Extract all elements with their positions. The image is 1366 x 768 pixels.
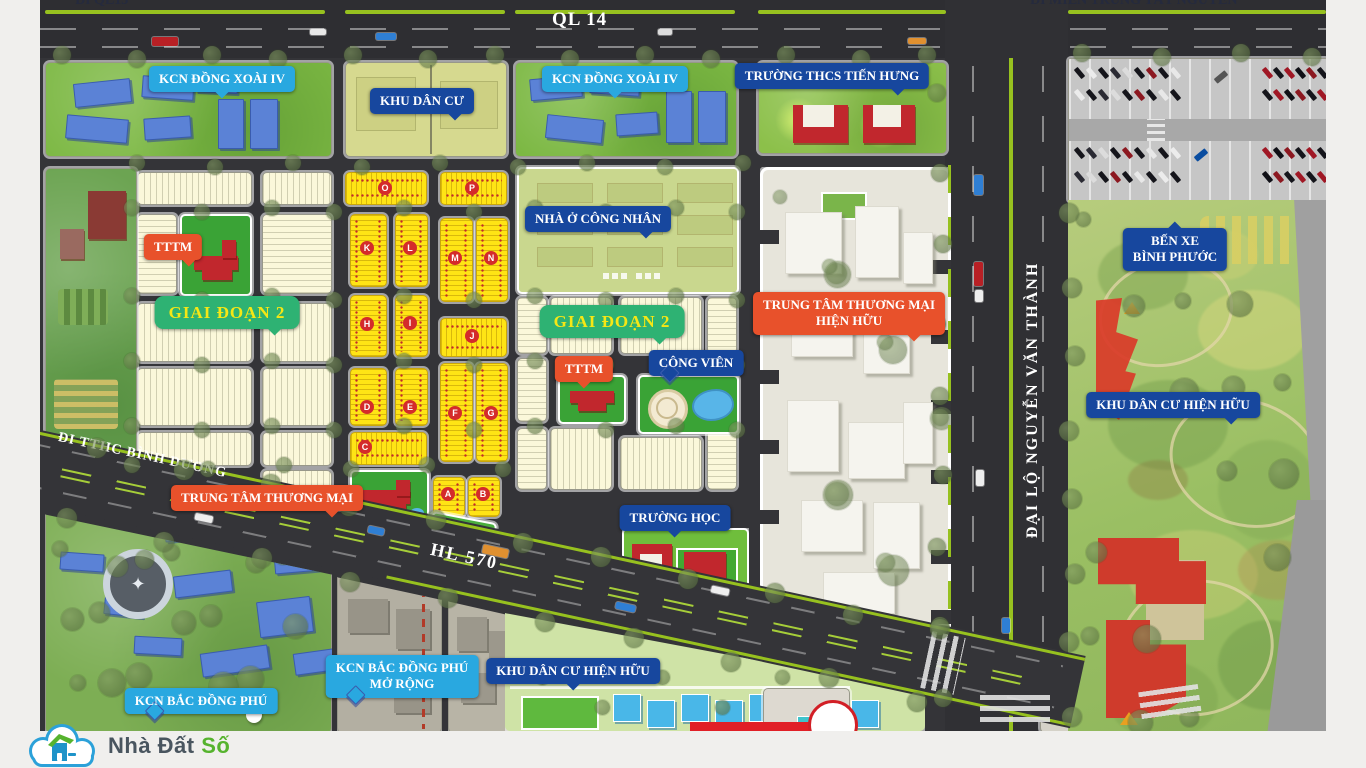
parcel-tttm-center: [558, 375, 626, 424]
building-outline: [607, 183, 663, 203]
tree-marker: [715, 700, 730, 715]
callout-label: NHÀ Ở CÔNG NHÂN: [535, 211, 661, 227]
tree-marker: [326, 292, 342, 308]
lane-dashes: [40, 28, 940, 30]
garden-rows: [58, 289, 108, 325]
tree-marker: [1123, 295, 1145, 317]
master-plan-map: ĐI QL13 QL 14 ĐI MIỀN TRUNG TÂY NGUYÊN Đ…: [40, 0, 1326, 731]
lot-letter-marker-B: B: [476, 487, 490, 501]
tree-marker: [729, 292, 745, 308]
building-footprint: [636, 273, 642, 279]
building-footprint: [603, 273, 609, 279]
tree-marker: [396, 200, 412, 216]
vehicle-marker: [908, 38, 926, 44]
callout-label: KCN BẮC ĐỒNG PHÚ: [336, 660, 469, 676]
callout-label: TRUNG TÂM THƯƠNG MẠI: [181, 490, 353, 506]
street-notch: [759, 510, 779, 524]
lot-letter-marker-O: O: [378, 181, 392, 195]
park-building: [60, 229, 84, 259]
tree-marker: [1153, 48, 1171, 66]
lot-letter-marker-G: G: [484, 406, 498, 420]
tree-marker: [721, 652, 741, 672]
tree-marker: [89, 602, 110, 623]
tree-marker: [207, 159, 223, 175]
lot-letter-marker-I: I: [403, 316, 417, 330]
tree-marker: [1062, 707, 1082, 727]
tree-marker: [252, 548, 272, 568]
lot-block: [137, 172, 252, 205]
tree-marker: [326, 204, 342, 220]
red-banner: [690, 722, 822, 731]
parcel-trung-tam-thuong-mai-hien-huu: [760, 167, 951, 661]
tree-marker: [53, 46, 71, 64]
road-green-line: [1068, 10, 1326, 14]
callout-label: TTTM: [154, 239, 192, 255]
tree-marker: [1303, 48, 1321, 66]
tree-marker: [775, 670, 790, 685]
crosswalk: [1147, 119, 1165, 141]
tree-marker: [87, 438, 107, 458]
lot-block-phase1: [395, 368, 428, 426]
callout-kcn-bac-dong-phu-mo-rong: KCN BẮC ĐỒNG PHÚMỞ RỘNG: [326, 655, 479, 698]
vehicle-marker: [658, 29, 672, 35]
tree-marker: [579, 155, 595, 171]
callout-truong-thcs-tien-hung: TRƯỜNG THCS TIẾN HƯNG: [735, 63, 929, 89]
tree-marker: [466, 292, 482, 308]
tree-marker: [591, 547, 611, 567]
building-shape: [615, 112, 658, 137]
road-label-di-ql13: ĐI QL13: [75, 0, 128, 9]
building-shape: [65, 114, 129, 143]
lot-letter-marker-F: F: [448, 406, 462, 420]
callout-tttm-phase2-west: TTTM: [144, 234, 202, 260]
tree-marker: [877, 334, 893, 350]
tree-marker: [466, 422, 482, 438]
cloud-house-icon: [26, 723, 100, 768]
parcel-parking-lot: [1068, 58, 1326, 202]
parking-road: [1069, 119, 1326, 141]
tree-marker: [843, 605, 863, 625]
road-label-di-mien-trung-tay-nguyen: ĐI MIỀN TRUNG TÂY NGUYÊN: [1030, 0, 1237, 9]
street-notch: [759, 440, 779, 454]
school-building: [793, 105, 848, 143]
callout-label: BẾN XE: [1133, 233, 1217, 249]
callout-giai-doan-2-center: GIAI ĐOẠN 2: [540, 305, 685, 338]
road-label-dai-lo-nguyen-van-thanh: ĐẠI LỘ NGUYỄN VĂN THÀNH: [1024, 170, 1046, 630]
tree-marker: [466, 204, 482, 220]
tttm-building: [202, 270, 232, 280]
tree-marker: [124, 353, 140, 369]
building-shape: [848, 422, 905, 479]
road-green-line: [45, 10, 325, 14]
callout-label: KCN ĐỒNG XOÀI IV: [159, 71, 285, 87]
building-footprint: [612, 273, 618, 279]
building-shape: [903, 402, 933, 464]
tree-marker: [70, 675, 86, 691]
vehicle-marker: [1002, 618, 1010, 633]
tree-marker: [98, 669, 126, 697]
callout-cong-vien: CÔNG VIÊN: [649, 350, 744, 376]
building-court: [873, 105, 901, 127]
building-shape: [613, 694, 641, 722]
sports-field: [521, 696, 599, 730]
building-footprint: [645, 273, 651, 279]
tree-marker: [931, 387, 949, 405]
vehicle-marker: [974, 262, 983, 286]
lot-letter-marker-J: J: [465, 329, 479, 343]
road-green-line: [345, 10, 505, 14]
vehicle-marker: [376, 33, 396, 40]
building-shape: [855, 206, 899, 278]
building-outline: [677, 247, 733, 267]
tree-marker: [624, 628, 644, 648]
lot-block-phase1: [350, 368, 387, 426]
road-label-ql14: QL 14: [552, 9, 607, 31]
callout-label: TRUNG TÂM THƯƠNG MẠI: [763, 297, 935, 313]
building-shape: [457, 617, 487, 651]
tttm-building: [222, 240, 236, 258]
tree-marker: [174, 460, 194, 480]
tree-marker: [1086, 542, 1107, 563]
logo-text: Nhà Đất Số: [108, 733, 230, 759]
tree-marker: [928, 84, 946, 102]
tree-marker: [172, 611, 196, 635]
callout-label: CÔNG VIÊN: [659, 355, 734, 371]
lot-block: [517, 428, 547, 490]
vehicle-marker: [310, 29, 326, 35]
building-court: [803, 105, 834, 127]
callout-kcn-dong-xoai-iv-east: KCN ĐỒNG XOÀI IV: [542, 66, 688, 92]
tree-marker: [928, 538, 946, 556]
tree-marker: [876, 553, 895, 572]
tree-marker: [396, 418, 412, 434]
tree-marker: [438, 588, 458, 608]
tree-marker: [124, 288, 140, 304]
lot-block: [707, 428, 737, 490]
building-shape: [173, 570, 233, 599]
tree-marker: [432, 155, 448, 171]
tree-marker: [930, 619, 950, 639]
tree-marker: [934, 466, 952, 484]
tree-marker: [1264, 544, 1291, 571]
playground-inner: [656, 397, 678, 419]
vehicle-marker: [974, 175, 983, 195]
tree-marker: [1059, 203, 1079, 223]
building-shape: [787, 400, 839, 472]
street-notch: [759, 370, 779, 384]
street-notch: [759, 230, 779, 244]
callout-ben-xe-binh-phuoc: BẾN XEBÌNH PHƯỚC: [1123, 228, 1227, 271]
school-building: [863, 105, 915, 143]
callout-label: TTTM: [565, 361, 603, 377]
tree-marker: [1227, 291, 1253, 317]
park-building: [88, 191, 126, 239]
tree-marker: [264, 353, 280, 369]
building-shape: [348, 599, 388, 633]
tree-marker: [276, 457, 292, 473]
tree-marker: [1217, 461, 1237, 481]
lot-letter-marker-N: N: [484, 251, 498, 265]
building-outline: [677, 215, 733, 235]
lot-letter-marker-E: E: [403, 400, 417, 414]
callout-kcn-dong-xoai-iv-west: KCN ĐỒNG XOÀI IV: [149, 66, 295, 92]
callout-trung-tam-thuong-mai: TRUNG TÂM THƯƠNG MẠI: [171, 485, 363, 511]
building-outline: [607, 247, 663, 267]
building-shape: [666, 91, 692, 143]
building-outline: [537, 247, 593, 267]
vehicle-marker: [152, 37, 178, 46]
building-shape: [681, 694, 709, 722]
tree-marker: [129, 155, 145, 171]
tree-marker: [595, 700, 610, 715]
callout-khu-dan-cu: KHU DÂN CƯ: [370, 88, 474, 114]
callout-label: KHU DÂN CƯ: [380, 93, 464, 109]
tree-marker: [931, 164, 949, 182]
page: ĐI QL13 QL 14 ĐI MIỀN TRUNG TÂY NGUYÊN Đ…: [0, 0, 1366, 768]
callout-label: TRƯỜNG HỌC: [630, 510, 721, 526]
lane-dashes: [1070, 28, 1326, 30]
tree-marker: [52, 541, 68, 557]
building-shape: [698, 91, 726, 143]
building-outline: [537, 183, 593, 203]
tree-marker: [326, 357, 342, 373]
road-green-line: [515, 10, 735, 14]
tree-marker: [124, 200, 140, 216]
tree-marker: [419, 457, 435, 473]
tree-marker: [819, 668, 839, 688]
tree-marker: [777, 46, 795, 64]
tree-marker: [1065, 346, 1085, 366]
tree-marker: [1133, 625, 1161, 653]
tree-marker: [510, 159, 526, 175]
callout-label: KCN ĐỒNG XOÀI IV: [552, 71, 678, 87]
tree-marker: [486, 46, 504, 64]
callout-nha-o-cong-nhan: NHÀ Ở CÔNG NHÂN: [525, 206, 671, 232]
callout-giai-doan-2-west: GIAI ĐOẠN 2: [155, 296, 300, 329]
lot-letter-marker-C: C: [358, 440, 372, 454]
tree-marker: [934, 689, 952, 707]
tree-marker: [1059, 632, 1079, 652]
tree-marker: [823, 480, 853, 510]
tree-marker: [598, 422, 614, 438]
callout-label: KCN BẮC ĐỒNG PHÚ: [135, 693, 268, 709]
crosswalk: [980, 695, 1050, 723]
nha-dat-so-logo: Nhà Đất Số: [26, 723, 230, 768]
callout-label: GIAI ĐOẠN 2: [169, 302, 286, 323]
tree-marker: [1081, 627, 1099, 645]
logo-text-accent: Số: [201, 733, 230, 758]
tree-marker: [918, 46, 936, 64]
tree-marker: [513, 533, 533, 553]
callout-khu-dan-cu-hien-huu-south: KHU DÂN CƯ HIỆN HỮU: [486, 658, 660, 684]
pond: [692, 389, 734, 421]
tree-marker: [283, 614, 308, 639]
footer-bar: Nhà Đất Số: [0, 731, 1366, 768]
tree-marker: [124, 418, 140, 434]
tree-marker: [1073, 44, 1091, 62]
callout-label: TRƯỜNG THCS TIẾN HƯNG: [745, 68, 919, 84]
tree-marker: [495, 461, 511, 477]
building-shape: [73, 78, 132, 108]
callout-label: HIỆN HỮU: [763, 313, 935, 329]
tree-marker: [128, 50, 146, 68]
callout-label: KHU DÂN CƯ HIỆN HỮU: [496, 663, 650, 679]
garden-rows: [54, 379, 118, 429]
lot-block: [262, 214, 332, 294]
tree-marker: [657, 159, 673, 175]
building-footprint: [621, 273, 627, 279]
tree-marker: [1065, 564, 1085, 584]
tree-marker: [466, 357, 482, 373]
lot-letter-marker-A: A: [441, 487, 455, 501]
callout-label: KHU DÂN CƯ HIỆN HỮU: [1096, 397, 1250, 413]
parcel-east-park: [1068, 200, 1326, 731]
tree-marker: [396, 353, 412, 369]
tree-marker: [822, 259, 837, 274]
logo-text-primary: Nhà Đất: [108, 733, 195, 758]
callout-truong-hoc: TRƯỜNG HỌC: [620, 505, 731, 531]
lot-block: [620, 437, 702, 490]
building-footprint: [654, 273, 660, 279]
building-outline: [677, 183, 733, 203]
building-shape: [134, 636, 183, 656]
tree-marker: [668, 418, 684, 434]
lot-letter-marker-M: M: [448, 251, 462, 265]
building-shape: [59, 551, 104, 572]
tree-marker: [1175, 293, 1191, 309]
building-shape: [647, 700, 675, 728]
road-green-line: [758, 10, 946, 14]
vehicle-marker: [976, 470, 984, 486]
tree-marker: [729, 422, 745, 438]
lane-dashes: [1070, 46, 1326, 48]
tree-marker: [1274, 374, 1291, 391]
building-shape: [218, 99, 244, 149]
vehicle-marker: [615, 602, 636, 613]
callout-trung-tam-thuong-mai-hien-huu: TRUNG TÂM THƯƠNG MẠIHIỆN HỮU: [753, 292, 945, 335]
callout-label: GIAI ĐOẠN 2: [554, 311, 671, 332]
building-shape: [143, 115, 191, 140]
tree-marker: [668, 288, 684, 304]
callout-label: MỞ RỘNG: [336, 676, 469, 692]
tree-marker: [200, 461, 216, 477]
callout-label: BÌNH PHƯỚC: [1133, 249, 1217, 265]
tree-marker: [678, 569, 698, 589]
tree-marker: [773, 190, 787, 204]
lane-dashes: [972, 66, 974, 686]
tree-marker: [765, 583, 785, 603]
building-shape: [545, 114, 604, 144]
tttm-building: [396, 480, 410, 496]
callout-tttm-phase2-center: TTTM: [555, 356, 613, 382]
parcel-cong-vien: [638, 375, 739, 434]
lot-letter-marker-L: L: [403, 241, 417, 255]
lot-letter-marker-P: P: [465, 181, 479, 195]
tree-marker: [200, 605, 222, 627]
callout-khu-dan-cu-hien-huu-east: KHU DÂN CƯ HIỆN HỮU: [1086, 392, 1260, 418]
tttm-building: [578, 403, 606, 411]
lot-block: [137, 368, 252, 426]
tree-marker: [343, 461, 359, 477]
tree-marker: [285, 155, 301, 171]
callout-kcn-bac-dong-phu: KCN BẮC ĐỒNG PHÚ: [125, 688, 278, 714]
tttm-building: [570, 391, 614, 403]
lot-letter-marker-K: K: [360, 241, 374, 255]
tree-marker: [107, 556, 128, 577]
tree-marker: [396, 288, 412, 304]
lot-letter-marker-D: D: [360, 400, 374, 414]
tree-marker: [636, 46, 654, 64]
tree-marker: [702, 50, 720, 68]
tree-marker: [907, 692, 927, 712]
tree-marker: [126, 663, 152, 689]
tree-marker: [354, 159, 370, 175]
vehicle-marker: [975, 290, 983, 302]
tree-marker: [729, 204, 745, 220]
vehicle-marker: [711, 585, 730, 596]
tree-marker: [326, 422, 342, 438]
tree-marker: [61, 608, 84, 631]
lot-letter-marker-H: H: [360, 317, 374, 331]
tree-marker: [135, 550, 154, 569]
tree-marker: [1269, 459, 1299, 489]
building-shape: [903, 232, 933, 284]
tree-marker: [124, 457, 140, 473]
lot-block: [262, 432, 332, 466]
tree-marker: [57, 508, 77, 528]
tree-marker: [735, 155, 751, 171]
building-shape: [250, 99, 278, 149]
tree-marker: [1062, 489, 1082, 509]
